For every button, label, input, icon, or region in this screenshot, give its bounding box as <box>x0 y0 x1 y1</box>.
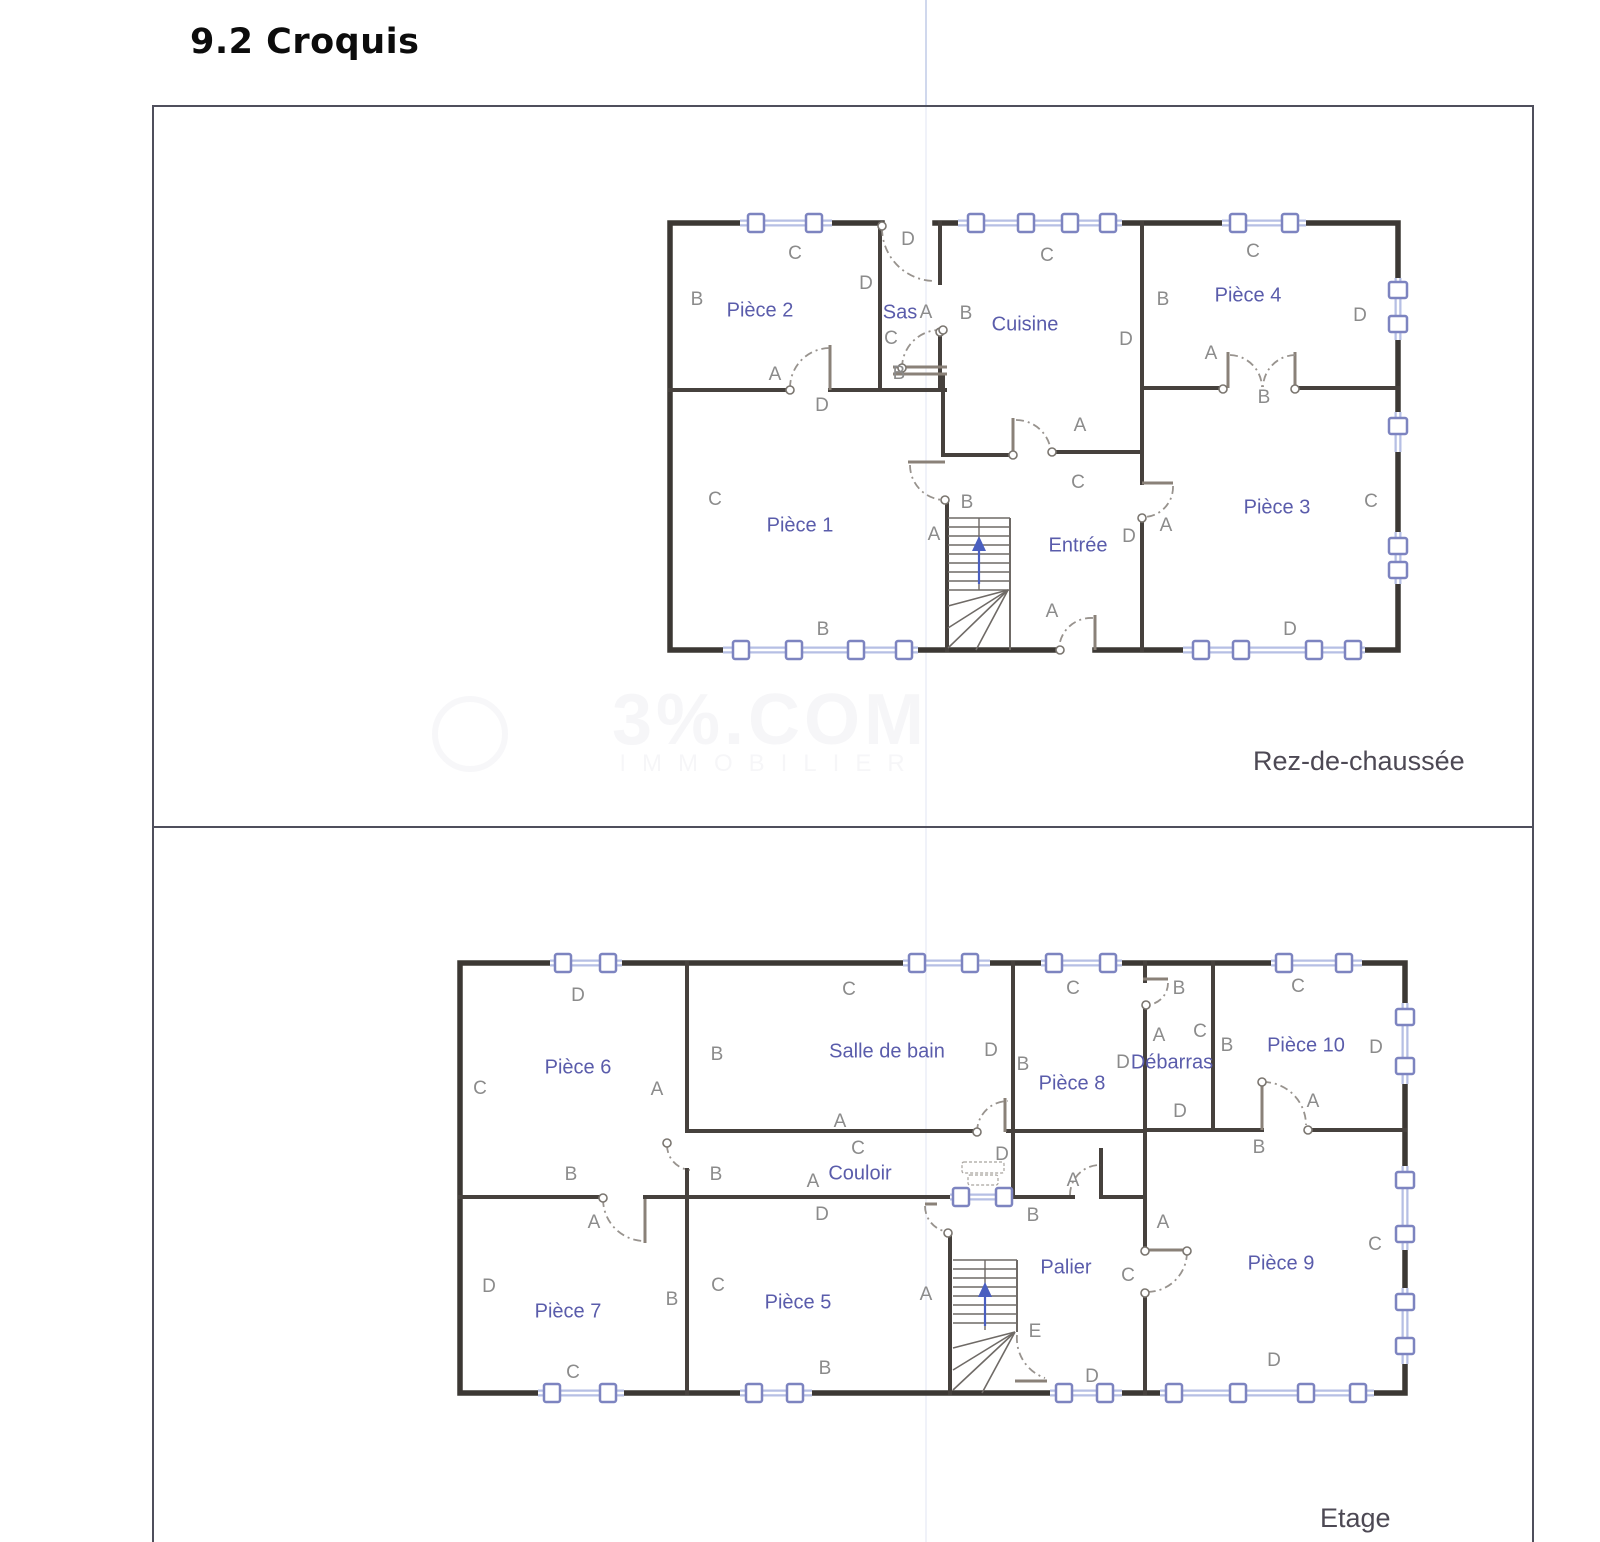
room-label: Pièce 5 <box>765 1291 832 1313</box>
door-arc-icon <box>1147 1252 1187 1292</box>
door-arc-icon <box>910 465 945 500</box>
room-label: Pièce 3 <box>1244 496 1311 518</box>
wall-letter: D <box>1353 305 1367 326</box>
door-arc-icon <box>1016 420 1051 452</box>
window-icon <box>1389 282 1407 298</box>
wall-letter: B <box>1258 387 1271 408</box>
window-icon <box>1230 214 1246 232</box>
window-icon <box>996 1188 1012 1206</box>
window-icon <box>1298 1384 1314 1402</box>
room-label: Pièce 4 <box>1215 284 1282 306</box>
window-icon <box>733 641 749 659</box>
window-icon <box>1062 214 1078 232</box>
window-icon <box>1097 1384 1113 1402</box>
room-label: Palier <box>1040 1256 1091 1278</box>
window-icon <box>1345 641 1361 659</box>
wall-letter: A <box>651 1079 664 1100</box>
wall-letter: C <box>884 328 898 349</box>
wall-letter: A <box>1153 1025 1166 1046</box>
room-label: Pièce 10 <box>1267 1034 1345 1056</box>
wall-letter: D <box>901 229 915 250</box>
window-icon <box>848 641 864 659</box>
room-label: Salle de bain <box>829 1040 945 1062</box>
window-icon <box>1336 954 1352 972</box>
wall-letter: C <box>473 1078 487 1099</box>
door-arc-icon <box>925 1206 949 1232</box>
window-icon <box>1046 954 1062 972</box>
window-icon <box>1306 641 1322 659</box>
window-icon <box>909 954 925 972</box>
wall-letter: D <box>1283 619 1297 640</box>
wall-letter: B <box>960 303 973 324</box>
window-icon <box>1396 1058 1414 1074</box>
wall-letter: D <box>571 985 585 1006</box>
wall-letter: D <box>1173 1101 1187 1122</box>
window-icon <box>968 214 984 232</box>
window-icon <box>786 641 802 659</box>
window-icon <box>962 954 978 972</box>
wall-letter: A <box>769 364 782 385</box>
window-icon <box>600 1384 616 1402</box>
window-icon <box>787 1384 803 1402</box>
wall-letter: B <box>1027 1205 1040 1226</box>
window-icon <box>1056 1384 1072 1402</box>
wall-letter: E <box>1029 1321 1042 1342</box>
wall-letter: C <box>788 243 802 264</box>
window-icon <box>1389 538 1407 554</box>
window-icon <box>555 954 571 972</box>
wall-letter: D <box>815 1204 829 1225</box>
floor-label-upper: Etage <box>1320 1503 1391 1534</box>
window-icon <box>1396 1226 1414 1242</box>
wall-letter: D <box>815 395 829 416</box>
wall-letter: B <box>691 289 704 310</box>
wall-letter: D <box>482 1276 496 1297</box>
wall-letter: C <box>1071 472 1085 493</box>
floor-label-ground: Rez-de-chaussée <box>1253 746 1465 777</box>
window-icon <box>1276 954 1292 972</box>
stairs-up-arrow-icon <box>972 536 986 551</box>
wall-letter: C <box>842 979 856 1000</box>
wall-letter: C <box>1121 1265 1135 1286</box>
room-label: Pièce 9 <box>1248 1252 1315 1274</box>
wall-letter: C <box>1193 1021 1207 1042</box>
wall-letter: A <box>1160 515 1173 536</box>
wall-letter: B <box>961 492 974 513</box>
door-arc-icon <box>1059 618 1093 649</box>
wall-letter: B <box>1173 978 1186 999</box>
wall-letter: C <box>708 489 722 510</box>
wall-letter: C <box>1364 491 1378 512</box>
wall-letter: A <box>928 524 941 545</box>
wall-letter: C <box>1066 978 1080 999</box>
page: { "page": { "title": "9.2 Croquis" }, "w… <box>0 0 1600 1542</box>
room-label: Couloir <box>828 1162 892 1184</box>
window-icon <box>1018 214 1034 232</box>
wall-letter: D <box>984 1040 998 1061</box>
window-icon <box>1350 1384 1366 1402</box>
wall-letter: D <box>1267 1350 1281 1371</box>
window-icon <box>1233 641 1249 659</box>
wall-letter: C <box>566 1362 580 1383</box>
wall-letter: B <box>565 1164 578 1185</box>
wall-letter: B <box>666 1289 679 1310</box>
door-arc-icon <box>977 1101 1008 1132</box>
door-arc-icon <box>902 330 942 368</box>
room-label: Entrée <box>1049 534 1108 556</box>
wall-letter: A <box>1074 415 1087 436</box>
wall-letter: A <box>1157 1212 1170 1233</box>
wc-fixture-icon <box>968 1175 998 1185</box>
window-icon <box>1193 641 1209 659</box>
wall-letter: B <box>819 1358 832 1379</box>
wall-letter: C <box>1368 1234 1382 1255</box>
window-icon <box>896 641 912 659</box>
window-icon <box>1389 562 1407 578</box>
ground-floor-plan: Pièce 2SasCuisinePièce 4Pièce 1EntréePiè… <box>670 214 1407 659</box>
wall-letter: D <box>1119 329 1133 350</box>
window-icon <box>1396 1172 1414 1188</box>
window-icon <box>1396 1294 1414 1310</box>
wall-letter: D <box>1116 1052 1130 1073</box>
wall-letter: C <box>711 1275 725 1296</box>
window-icon <box>1396 1338 1414 1354</box>
wall-letter: A <box>1067 1170 1080 1191</box>
window-icon <box>746 1384 762 1402</box>
room-label: Pièce 1 <box>767 514 834 536</box>
wall-letter: A <box>807 1171 820 1192</box>
window-icon <box>600 954 616 972</box>
wall-letter: A <box>834 1111 847 1132</box>
wall-letter: C <box>1246 241 1260 262</box>
wall-letter: C <box>1040 245 1054 266</box>
window-icon <box>1396 1009 1414 1025</box>
window-icon <box>1100 954 1116 972</box>
door-arc-icon <box>1230 355 1262 387</box>
wall-letter: D <box>995 1144 1009 1165</box>
wall-letter: B <box>817 619 830 640</box>
window-icon <box>544 1384 560 1402</box>
wall-letter: A <box>920 302 933 323</box>
wall-letter: A <box>588 1212 601 1233</box>
window-icon <box>1230 1384 1246 1402</box>
stairs-icon <box>948 518 1010 650</box>
door-arc-icon <box>1145 486 1173 517</box>
wall-letter: A <box>1307 1091 1320 1112</box>
wall-letter: A <box>920 1284 933 1305</box>
window-icon <box>1389 316 1407 332</box>
window-icon <box>748 214 764 232</box>
window-icon <box>1282 214 1298 232</box>
door-arc-icon <box>1263 355 1295 387</box>
wall-letter: D <box>1085 1366 1099 1387</box>
room-label: Pièce 6 <box>545 1056 612 1078</box>
wall-letter: B <box>1017 1054 1030 1075</box>
room-label: Pièce 2 <box>727 299 794 321</box>
window-icon <box>806 214 822 232</box>
upper-floor-plan: Pièce 6Salle de bainPièce 8DébarrasPièce… <box>460 954 1414 1402</box>
wall-letter: C <box>851 1138 865 1159</box>
wall-letter: B <box>893 363 906 384</box>
wall-letter: B <box>1221 1035 1234 1056</box>
room-label: Cuisine <box>992 313 1059 335</box>
room-label: Pièce 7 <box>535 1300 602 1322</box>
wall-letter: D <box>1369 1037 1383 1058</box>
window-icon <box>1389 418 1407 434</box>
window-icon <box>1100 214 1116 232</box>
wall-letter: B <box>1253 1137 1266 1158</box>
stairs-icon <box>953 1260 1017 1393</box>
wall-letter: B <box>1157 289 1170 310</box>
window-icon <box>953 1188 969 1206</box>
door-arc-icon <box>790 348 830 388</box>
stairs-up-arrow-icon <box>978 1282 992 1297</box>
room-label: Sas <box>883 301 917 323</box>
door-arc-icon <box>1263 1082 1306 1125</box>
wall-letter: B <box>711 1044 724 1065</box>
wall-letter: A <box>1205 343 1218 364</box>
wall-letter: C <box>1291 976 1305 997</box>
door-arc-icon <box>667 1145 690 1170</box>
room-label: Pièce 8 <box>1039 1072 1106 1094</box>
wall-letter: D <box>1122 526 1136 547</box>
room-label: Débarras <box>1131 1051 1213 1073</box>
wall-letter: B <box>710 1164 723 1185</box>
door-arc-icon <box>603 1199 644 1241</box>
wall-letter: D <box>859 273 873 294</box>
wall-letter: A <box>1046 601 1059 622</box>
window-icon <box>1166 1384 1182 1402</box>
